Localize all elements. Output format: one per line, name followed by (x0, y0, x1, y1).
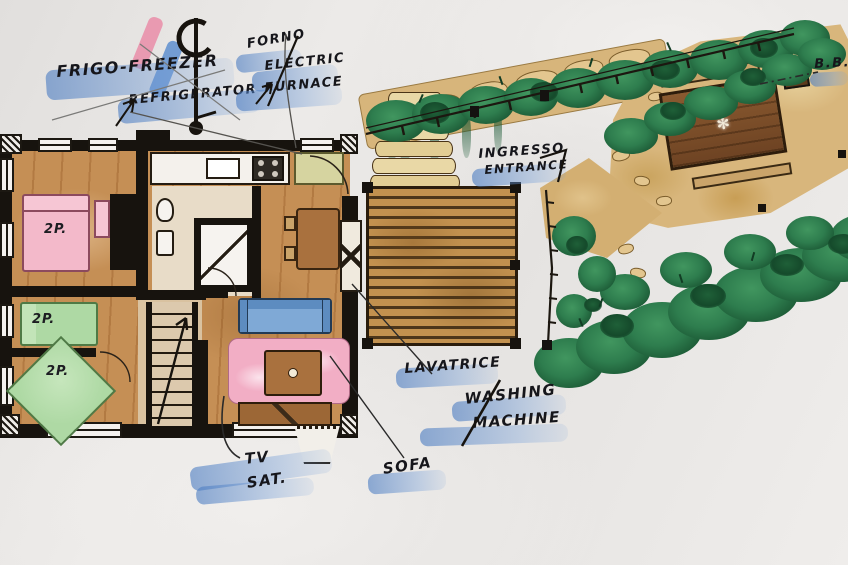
corner-hatch (340, 414, 358, 436)
label-oven-it: FORNO (246, 28, 307, 52)
stove (252, 156, 284, 181)
garden-bush (578, 256, 616, 292)
tv-cabinet (238, 402, 332, 426)
burner (258, 160, 264, 166)
window (0, 304, 14, 338)
deck-post (362, 338, 373, 349)
highlight (810, 71, 848, 87)
wall-bedroom-divider (136, 150, 148, 296)
wardrobe (110, 194, 136, 270)
pergola-vine-shadow (740, 68, 766, 86)
bedroom-capacity-label: 2P. (44, 222, 67, 237)
window (0, 158, 14, 192)
sofa-armrest (322, 300, 330, 332)
pergola-post (838, 150, 846, 158)
table-knob (288, 368, 298, 378)
window (38, 138, 72, 152)
step (372, 158, 456, 174)
bedroom-capacity-label: 2P. (32, 312, 55, 327)
north-arrow-base (189, 121, 203, 135)
hedge-shadow (420, 102, 450, 124)
burner (272, 160, 278, 166)
laundry-closet (340, 220, 362, 292)
deck-post (510, 260, 520, 270)
pergola-post (758, 204, 766, 212)
bed-pillow-line (24, 210, 88, 212)
dining-chair (284, 216, 296, 231)
window (88, 138, 118, 152)
deck-post (510, 338, 521, 349)
burner (272, 171, 278, 177)
wall-hall-living (198, 340, 208, 428)
toilet (156, 198, 174, 222)
label-bbq: B.B.Q (814, 55, 848, 71)
coffee-table (264, 350, 322, 396)
dining-chair (284, 246, 296, 261)
shower-box (194, 218, 254, 292)
kitchen-sink (206, 158, 240, 179)
nightstand (94, 200, 110, 238)
deck-post (362, 182, 373, 193)
wall-mid-horizontal (0, 286, 140, 297)
dining-table (296, 208, 340, 270)
label-tv: TV (244, 449, 270, 467)
corner-hatch (340, 134, 358, 154)
hedge-shadow (750, 38, 778, 58)
breakfast-bar (294, 152, 344, 185)
sofa (238, 298, 332, 334)
hedge-shadow (600, 314, 634, 338)
burner (258, 171, 264, 177)
bathroom-sink (156, 230, 174, 256)
wood-deck (366, 186, 518, 346)
window (300, 138, 334, 152)
corner-hatch (0, 414, 20, 436)
hedge-blob (660, 252, 712, 288)
window (0, 222, 14, 258)
corner-hatch (0, 134, 22, 154)
pergola-vine-shadow (660, 102, 686, 120)
hedge-blob (786, 216, 834, 250)
floor-plan-sketch: ✻ (0, 0, 848, 565)
hedge-shadow (650, 60, 680, 80)
bedroom-capacity-label: 2P. (46, 364, 69, 379)
hedge-shadow (530, 82, 558, 102)
hedge-shadow (690, 284, 726, 308)
hedge-blob (724, 234, 776, 270)
chimney-block (136, 130, 170, 144)
garden-bush-shadow (566, 236, 588, 254)
sofa-armrest (240, 300, 248, 332)
hedge-shadow (770, 254, 804, 276)
step (375, 141, 453, 157)
staircase (146, 302, 198, 426)
